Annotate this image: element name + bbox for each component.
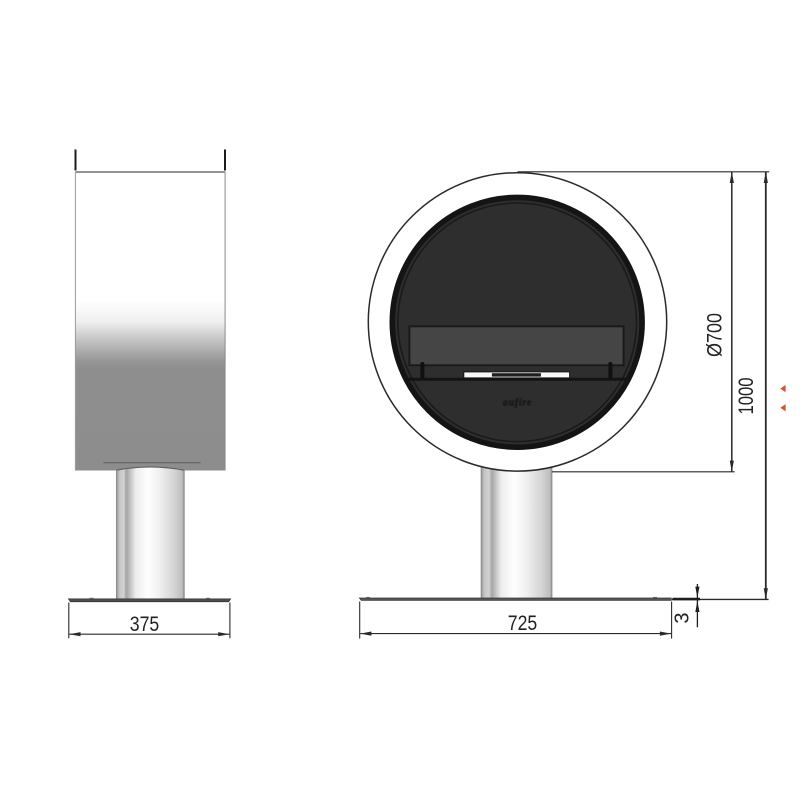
svg-text:1000: 1000 [735, 378, 758, 415]
svg-text:aufire: aufire [503, 398, 532, 409]
svg-text:Ø700: Ø700 [704, 313, 727, 357]
svg-text:725: 725 [508, 612, 538, 635]
svg-text:3: 3 [672, 612, 694, 623]
svg-text:375: 375 [130, 613, 160, 636]
